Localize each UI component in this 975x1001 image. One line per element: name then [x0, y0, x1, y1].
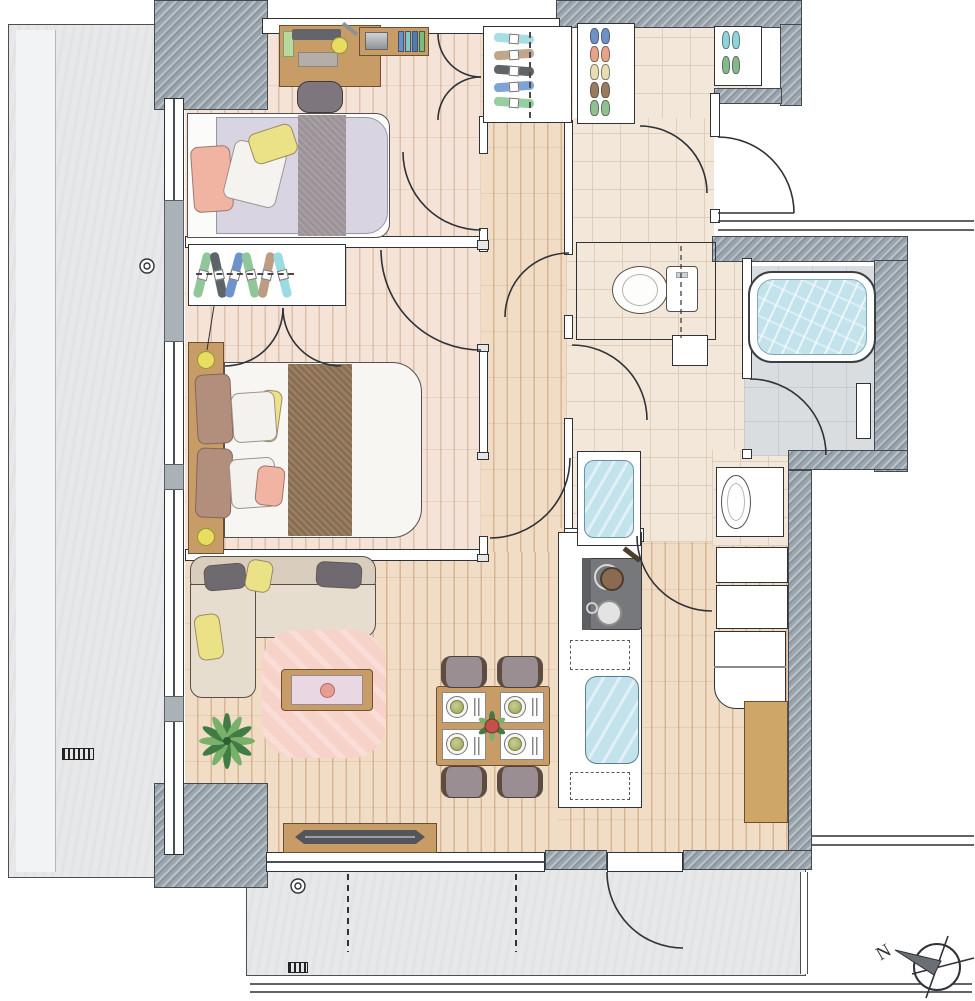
book [419, 31, 425, 52]
bookshelf-screen [365, 32, 388, 50]
hanger-clip [509, 33, 520, 44]
shoe [590, 100, 599, 116]
washroom-cabinet [672, 335, 708, 366]
wall-post [477, 344, 489, 352]
hanger-clip [213, 269, 225, 281]
pillow-white [230, 391, 277, 444]
plate [446, 696, 468, 718]
food-icon [450, 700, 464, 714]
vent-grille [62, 748, 94, 760]
plate [446, 733, 468, 755]
desk-chair [297, 81, 343, 113]
shoe [590, 46, 599, 62]
balcony-south [246, 866, 806, 976]
hanger-clip [245, 269, 257, 281]
bath-shelf [856, 383, 871, 439]
tv-line [305, 836, 415, 838]
burner [596, 600, 622, 626]
shoe [590, 82, 599, 98]
wall-step-southeast [788, 450, 908, 470]
closet-rod [196, 273, 294, 275]
wall-post [477, 452, 489, 460]
wall-east [788, 470, 812, 868]
wall-seg [564, 120, 573, 255]
slipper [722, 31, 730, 49]
sofa-pillow-gray [315, 561, 362, 589]
single-bed-runner [298, 115, 346, 236]
wall-entry-door-jamb [710, 93, 720, 137]
wall-entry-right [780, 24, 802, 106]
compass-needle [895, 950, 941, 975]
cutlery-icon [474, 737, 480, 755]
shoe [601, 82, 610, 98]
hanger-clip [509, 97, 520, 108]
food-icon [508, 700, 522, 714]
wall-seg [564, 315, 573, 339]
book [398, 31, 404, 52]
book [405, 31, 411, 52]
stove-side [582, 558, 591, 630]
shoe [601, 100, 610, 116]
balcony-south-edge [800, 872, 808, 974]
hanger-clip [261, 269, 273, 281]
hanger-clip [276, 269, 288, 281]
cutlery-icon [532, 737, 538, 755]
counter-dashed [570, 772, 630, 800]
plate [504, 733, 526, 755]
desk-lamp-icon [331, 37, 348, 54]
shoe [590, 28, 599, 44]
kitchen-sink [585, 676, 639, 764]
food-icon [508, 737, 522, 751]
pan-icon [600, 567, 624, 591]
book [412, 31, 418, 52]
wall-entry-top [714, 88, 782, 104]
slipper [732, 31, 740, 49]
pillow-brown [194, 373, 234, 445]
shoe [590, 64, 599, 80]
washing-machine [584, 460, 634, 538]
floor-plan: N [0, 0, 975, 1001]
hanger-clip [509, 81, 520, 92]
vent-grille [288, 962, 308, 973]
burner-small [586, 602, 598, 614]
double-bed-runner [288, 364, 352, 536]
vanity-basin-inner [727, 483, 745, 521]
shoe [601, 46, 610, 62]
pillow-brown [195, 447, 233, 518]
toilet-bowl-inner [622, 274, 658, 306]
cutlery-icon [474, 698, 480, 716]
window-pier [164, 200, 184, 342]
entry-closet-rod [529, 32, 531, 118]
wall-seg [479, 350, 488, 456]
wall-south-east [683, 850, 812, 870]
compass: N [873, 936, 974, 998]
wall-corner-nw [154, 0, 268, 110]
wall-south-pier [545, 850, 607, 870]
kitchen-cabinet [716, 547, 788, 583]
bed-lamp-icon [197, 528, 215, 546]
kitchen-cabinet [716, 585, 788, 629]
bed-lamp-icon [197, 351, 215, 369]
entrance-hall-tile [564, 118, 714, 246]
balcony-door-opening [607, 852, 683, 872]
wall-post [477, 240, 489, 250]
balcony-west-edge [16, 30, 56, 872]
wall-post [477, 554, 489, 562]
window-south [266, 852, 545, 872]
sofa-pillow-gray [203, 562, 247, 592]
hanger-clip [509, 65, 520, 76]
counter-dashed [570, 640, 630, 670]
dining-chair [497, 656, 543, 688]
hanger-clip [509, 49, 520, 60]
desk-keyboard [298, 52, 338, 67]
pillow-pink [254, 465, 286, 508]
wall-seg [742, 449, 752, 459]
compass-north-label: N [873, 940, 896, 965]
refrigerator-door-line [714, 666, 786, 668]
plate [504, 696, 526, 718]
shoe [601, 64, 610, 80]
cutlery-icon [532, 698, 538, 716]
shoe [601, 28, 610, 44]
window-pier [164, 464, 184, 490]
toilet-button [676, 272, 688, 278]
dining-chair [441, 766, 487, 798]
tall-cabinet [744, 701, 788, 823]
door-arc-entry [718, 137, 794, 213]
wall-bath-east [874, 260, 908, 472]
compass-ring [914, 944, 960, 990]
coffee-table-dish [320, 683, 335, 698]
compass-axis [926, 936, 948, 998]
wall-seg [564, 418, 573, 530]
slipper [722, 56, 730, 74]
window-pier [164, 696, 184, 722]
wall-entry-door-jamb [710, 209, 720, 223]
food-icon [450, 737, 464, 751]
slipper [732, 56, 740, 74]
compass-axis [912, 958, 974, 974]
bathtub-water [757, 279, 867, 355]
dining-chair [497, 766, 543, 798]
dining-chair [441, 656, 487, 688]
refrigerator [714, 631, 786, 709]
